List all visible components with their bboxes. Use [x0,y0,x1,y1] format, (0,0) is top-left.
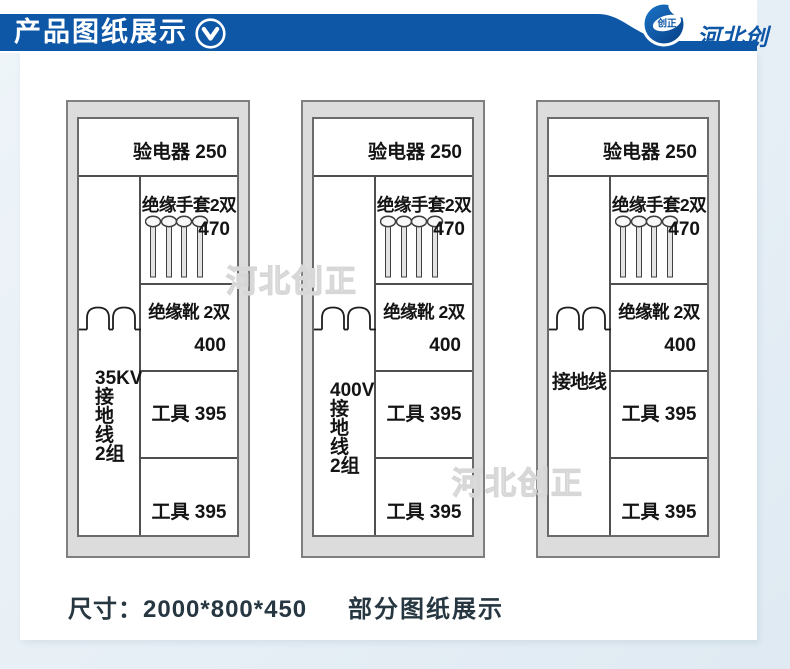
tools-shelf-upper: 工具 395 [611,372,707,459]
boots-shelf-label: 绝缘靴 2双 [611,299,707,324]
gloves-shelf: 绝缘手套2双 470 [141,177,237,285]
gloves-shelf-label: 绝缘手套2双 [141,192,237,217]
gloves-shelf: 绝缘手套2双 470 [376,177,472,285]
ground-wire-compartment: 35KV 接 地 线 2组 [79,177,141,535]
boots-arch-icon [314,304,376,331]
page-title: 产品图纸展示 [14,17,188,48]
tools-shelf-upper: 工具 395 [376,372,472,459]
tools-shelf-lower: 工具 395 [141,459,237,535]
cabinet-interior: 验电器 250 400V 接 地 线 2组 [312,117,474,537]
boots-arch-icon [549,304,611,331]
dimensions-text: 尺寸：2000*800*450 [68,589,307,624]
ground-wire-label: 400V 接 地 线 2组 [330,381,376,476]
svg-text:创正: 创正 [656,18,677,30]
tools-upper-label: 工具 395 [152,399,227,426]
ground-wire-label: 接地线 [552,367,612,394]
tester-shelf-label: 验电器 250 [603,137,697,164]
tools-lower-label: 工具 395 [152,497,227,524]
cabinet-interior: 验电器 250 35KV 接 地 线 2组 [77,117,239,537]
watermark: 河北创正 [452,458,584,503]
caption-text: 部分图纸展示 [348,589,504,624]
tools-lower-label: 工具 395 [622,497,697,524]
tester-shelf: 验电器 250 [79,119,237,177]
gloves-shelf: 绝缘手套2双 470 [611,177,707,285]
tester-shelf: 验电器 250 [549,119,707,177]
tools-upper-label: 工具 395 [622,399,697,426]
ground-wire-label: 35KV 接 地 线 2组 [95,369,141,464]
tester-shelf: 验电器 250 [314,119,472,177]
tools-upper-label: 工具 395 [387,399,462,426]
gloves-height-value: 470 [433,219,465,241]
gloves-shelf-label: 绝缘手套2双 [611,192,707,217]
tester-shelf-label: 验电器 250 [133,137,227,164]
boots-height-value: 400 [429,335,461,357]
boots-shelf: 绝缘靴 2双 400 [611,285,707,372]
gloves-height-value: 470 [198,219,230,241]
boots-shelf: 绝缘靴 2双 400 [141,285,237,372]
chevron-down-circle-icon [194,17,227,50]
gloves-shelf-label: 绝缘手套2双 [376,192,472,217]
watermark: 河北创正 [226,256,358,301]
boots-height-value: 400 [664,335,696,357]
boots-shelf-label: 绝缘靴 2双 [141,299,237,324]
ground-wire-compartment: 400V 接 地 线 2组 [314,177,376,535]
boots-shelf-label: 绝缘靴 2双 [376,299,472,324]
tester-shelf-label: 验电器 250 [368,137,462,164]
boots-arch-icon [79,304,141,331]
boots-height-value: 400 [194,335,226,357]
boots-shelf: 绝缘靴 2双 400 [376,285,472,372]
cabinet-diagram-35kv: 验电器 250 35KV 接 地 线 2组 [66,100,250,558]
tools-lower-label: 工具 395 [387,497,462,524]
gloves-height-value: 470 [668,219,700,241]
tools-shelf-upper: 工具 395 [141,372,237,459]
tools-shelf-lower: 工具 395 [611,459,707,535]
brand-logo-icon: 创正 [640,1,688,49]
